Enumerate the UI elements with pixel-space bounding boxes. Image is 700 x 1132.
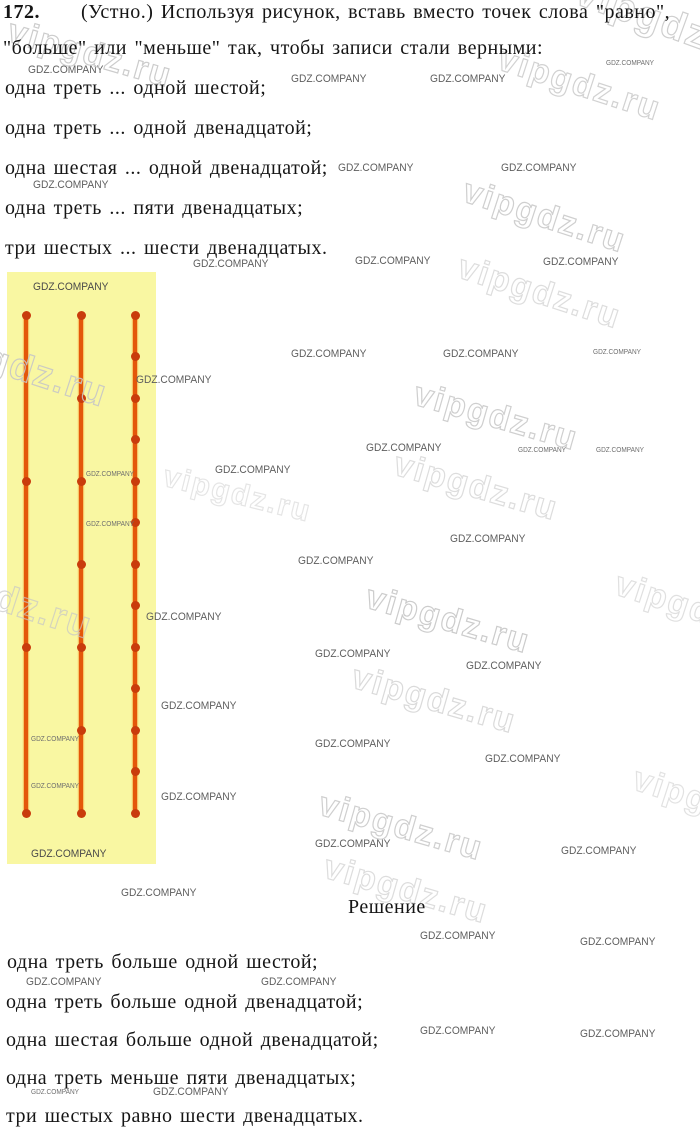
thirds-line	[24, 315, 28, 813]
division-dot	[131, 726, 140, 735]
gdz-company-watermark: GDZ.COMPANY	[161, 791, 236, 803]
condition-line: одна шестая ... одной двенадцатой;	[5, 157, 328, 180]
gdz-company-watermark: GDZ.COMPANY	[593, 349, 641, 356]
gdz-company-watermark: GDZ.COMPANY	[543, 256, 618, 268]
gdz-company-watermark: GDZ.COMPANY	[466, 660, 541, 672]
division-dot	[22, 477, 31, 486]
solution-heading: Решение	[348, 896, 426, 919]
gdz-company-watermark: GDZ.COMPANY	[580, 1028, 655, 1040]
division-dot	[131, 311, 140, 320]
solution-line: одна треть больше одной шестой;	[7, 951, 318, 974]
vipgdz-watermark: vipgdz.ru	[610, 565, 700, 654]
division-dot	[22, 643, 31, 652]
gdz-company-watermark: GDZ.COMPANY	[28, 64, 103, 76]
page: { "page": { "problem_number": "172.", "h…	[0, 0, 700, 1132]
vipgdz-watermark: vipgdz.ru	[409, 375, 582, 459]
gdz-company-watermark: GDZ.COMPANY	[215, 464, 290, 476]
gdz-company-watermark: GDZ.COMPANY	[366, 442, 441, 454]
division-dot	[77, 643, 86, 652]
gdz-company-watermark: GDZ.COMPANY	[31, 1089, 79, 1096]
gdz-company-watermark: GDZ.COMPANY	[596, 447, 644, 454]
division-dot	[131, 394, 140, 403]
gdz-company-watermark: GDZ.COMPANY	[606, 60, 654, 67]
division-dot	[22, 809, 31, 818]
gdz-company-watermark: GDZ.COMPANY	[161, 700, 236, 712]
condition-line: одна треть ... одной шестой;	[5, 77, 266, 100]
division-dot	[77, 477, 86, 486]
gdz-company-watermark: GDZ.COMPANY	[485, 753, 560, 765]
solution-line: одна треть больше одной двенадцатой;	[6, 991, 363, 1014]
condition-line: одна треть ... пяти двенадцатых;	[5, 197, 303, 220]
division-dot	[77, 809, 86, 818]
gdz-company-watermark: GDZ.COMPANY	[338, 162, 413, 174]
gdz-company-watermark: GDZ.COMPANY	[315, 738, 390, 750]
division-dot	[131, 809, 140, 818]
gdz-company-watermark: GDZ.COMPANY	[450, 533, 525, 545]
division-dot	[131, 518, 140, 527]
division-dot	[22, 311, 31, 320]
gdz-company-watermark: GDZ.COMPANY	[261, 976, 336, 988]
solution-line: одна шестая больше одной двенадцатой;	[6, 1029, 379, 1052]
division-dot	[131, 352, 140, 361]
vipgdz-watermark: vipgdz.ru	[347, 658, 520, 742]
gdz-company-watermark: GDZ.COMPANY	[146, 611, 221, 623]
gdz-company-watermark: GDZ.COMPANY	[33, 179, 108, 191]
gdz-company-watermark: GDZ.COMPANY	[291, 348, 366, 360]
gdz-company-watermark: GDZ.COMPANY	[26, 976, 101, 988]
gdz-company-watermark: GDZ.COMPANY	[355, 255, 430, 267]
division-dot	[131, 435, 140, 444]
condition-line: одна треть ... одной двенадцатой;	[5, 117, 312, 140]
vipgdz-watermark: vipgdz.ru	[458, 172, 631, 261]
gdz-company-watermark: GDZ.COMPANY	[121, 887, 196, 899]
gdz-company-watermark: GDZ.COMPANY	[443, 348, 518, 360]
problem-header-line2: "больше" или "меньше" так, чтобы записи …	[3, 37, 543, 60]
division-dot	[131, 477, 140, 486]
division-dot	[131, 643, 140, 652]
twelfths-line	[133, 315, 137, 813]
gdz-company-watermark: GDZ.COMPANY	[501, 162, 576, 174]
gdz-company-watermark: GDZ.COMPANY	[430, 73, 505, 85]
vipgdz-watermark: vipgdz.ru	[314, 785, 487, 869]
gdz-company-watermark: GDZ.COMPANY	[420, 930, 495, 942]
division-dot	[77, 560, 86, 569]
division-dot	[131, 560, 140, 569]
solution-line: три шестых равно шести двенадцатых.	[6, 1105, 364, 1128]
division-dot	[131, 767, 140, 776]
gdz-company-watermark: GDZ.COMPANY	[315, 648, 390, 660]
division-dot	[131, 601, 140, 610]
gdz-company-watermark: GDZ.COMPANY	[420, 1025, 495, 1037]
gdz-company-watermark: GDZ.COMPANY	[518, 447, 566, 454]
gdz-company-watermark: GDZ.COMPANY	[291, 73, 366, 85]
division-dot	[77, 726, 86, 735]
division-dot	[77, 394, 86, 403]
gdz-company-watermark: GDZ.COMPANY	[315, 838, 390, 850]
division-dot	[77, 311, 86, 320]
division-dot	[131, 684, 140, 693]
vipgdz-watermark: vipgdz.ru	[628, 760, 700, 849]
problem-header-line1: (Устно.) Используя рисунок, вставь вмест…	[81, 1, 670, 24]
problem-number: 172.	[3, 1, 40, 24]
fraction-number-lines-figure	[7, 272, 156, 864]
gdz-company-watermark: GDZ.COMPANY	[561, 845, 636, 857]
vipgdz-watermark: vipgdz.ru	[389, 445, 562, 529]
sixths-line	[79, 315, 83, 813]
vipgdz-watermark: vipgdz.ru	[361, 578, 534, 662]
vipgdz-watermark: vipgdz.ru	[453, 248, 626, 337]
solution-line: одна треть меньше пяти двенадцатых;	[6, 1067, 356, 1090]
vipgdz-watermark: vipgdz.ru	[160, 460, 315, 530]
gdz-company-watermark: GDZ.COMPANY	[580, 936, 655, 948]
vipgdz-watermark: vipgdz.ru	[319, 848, 492, 932]
problem-header: 172. (Устно.) Используя рисунок, вставь …	[3, 1, 670, 24]
gdz-company-watermark: GDZ.COMPANY	[298, 555, 373, 567]
condition-line: три шестых ... шести двенадцатых.	[5, 237, 328, 260]
